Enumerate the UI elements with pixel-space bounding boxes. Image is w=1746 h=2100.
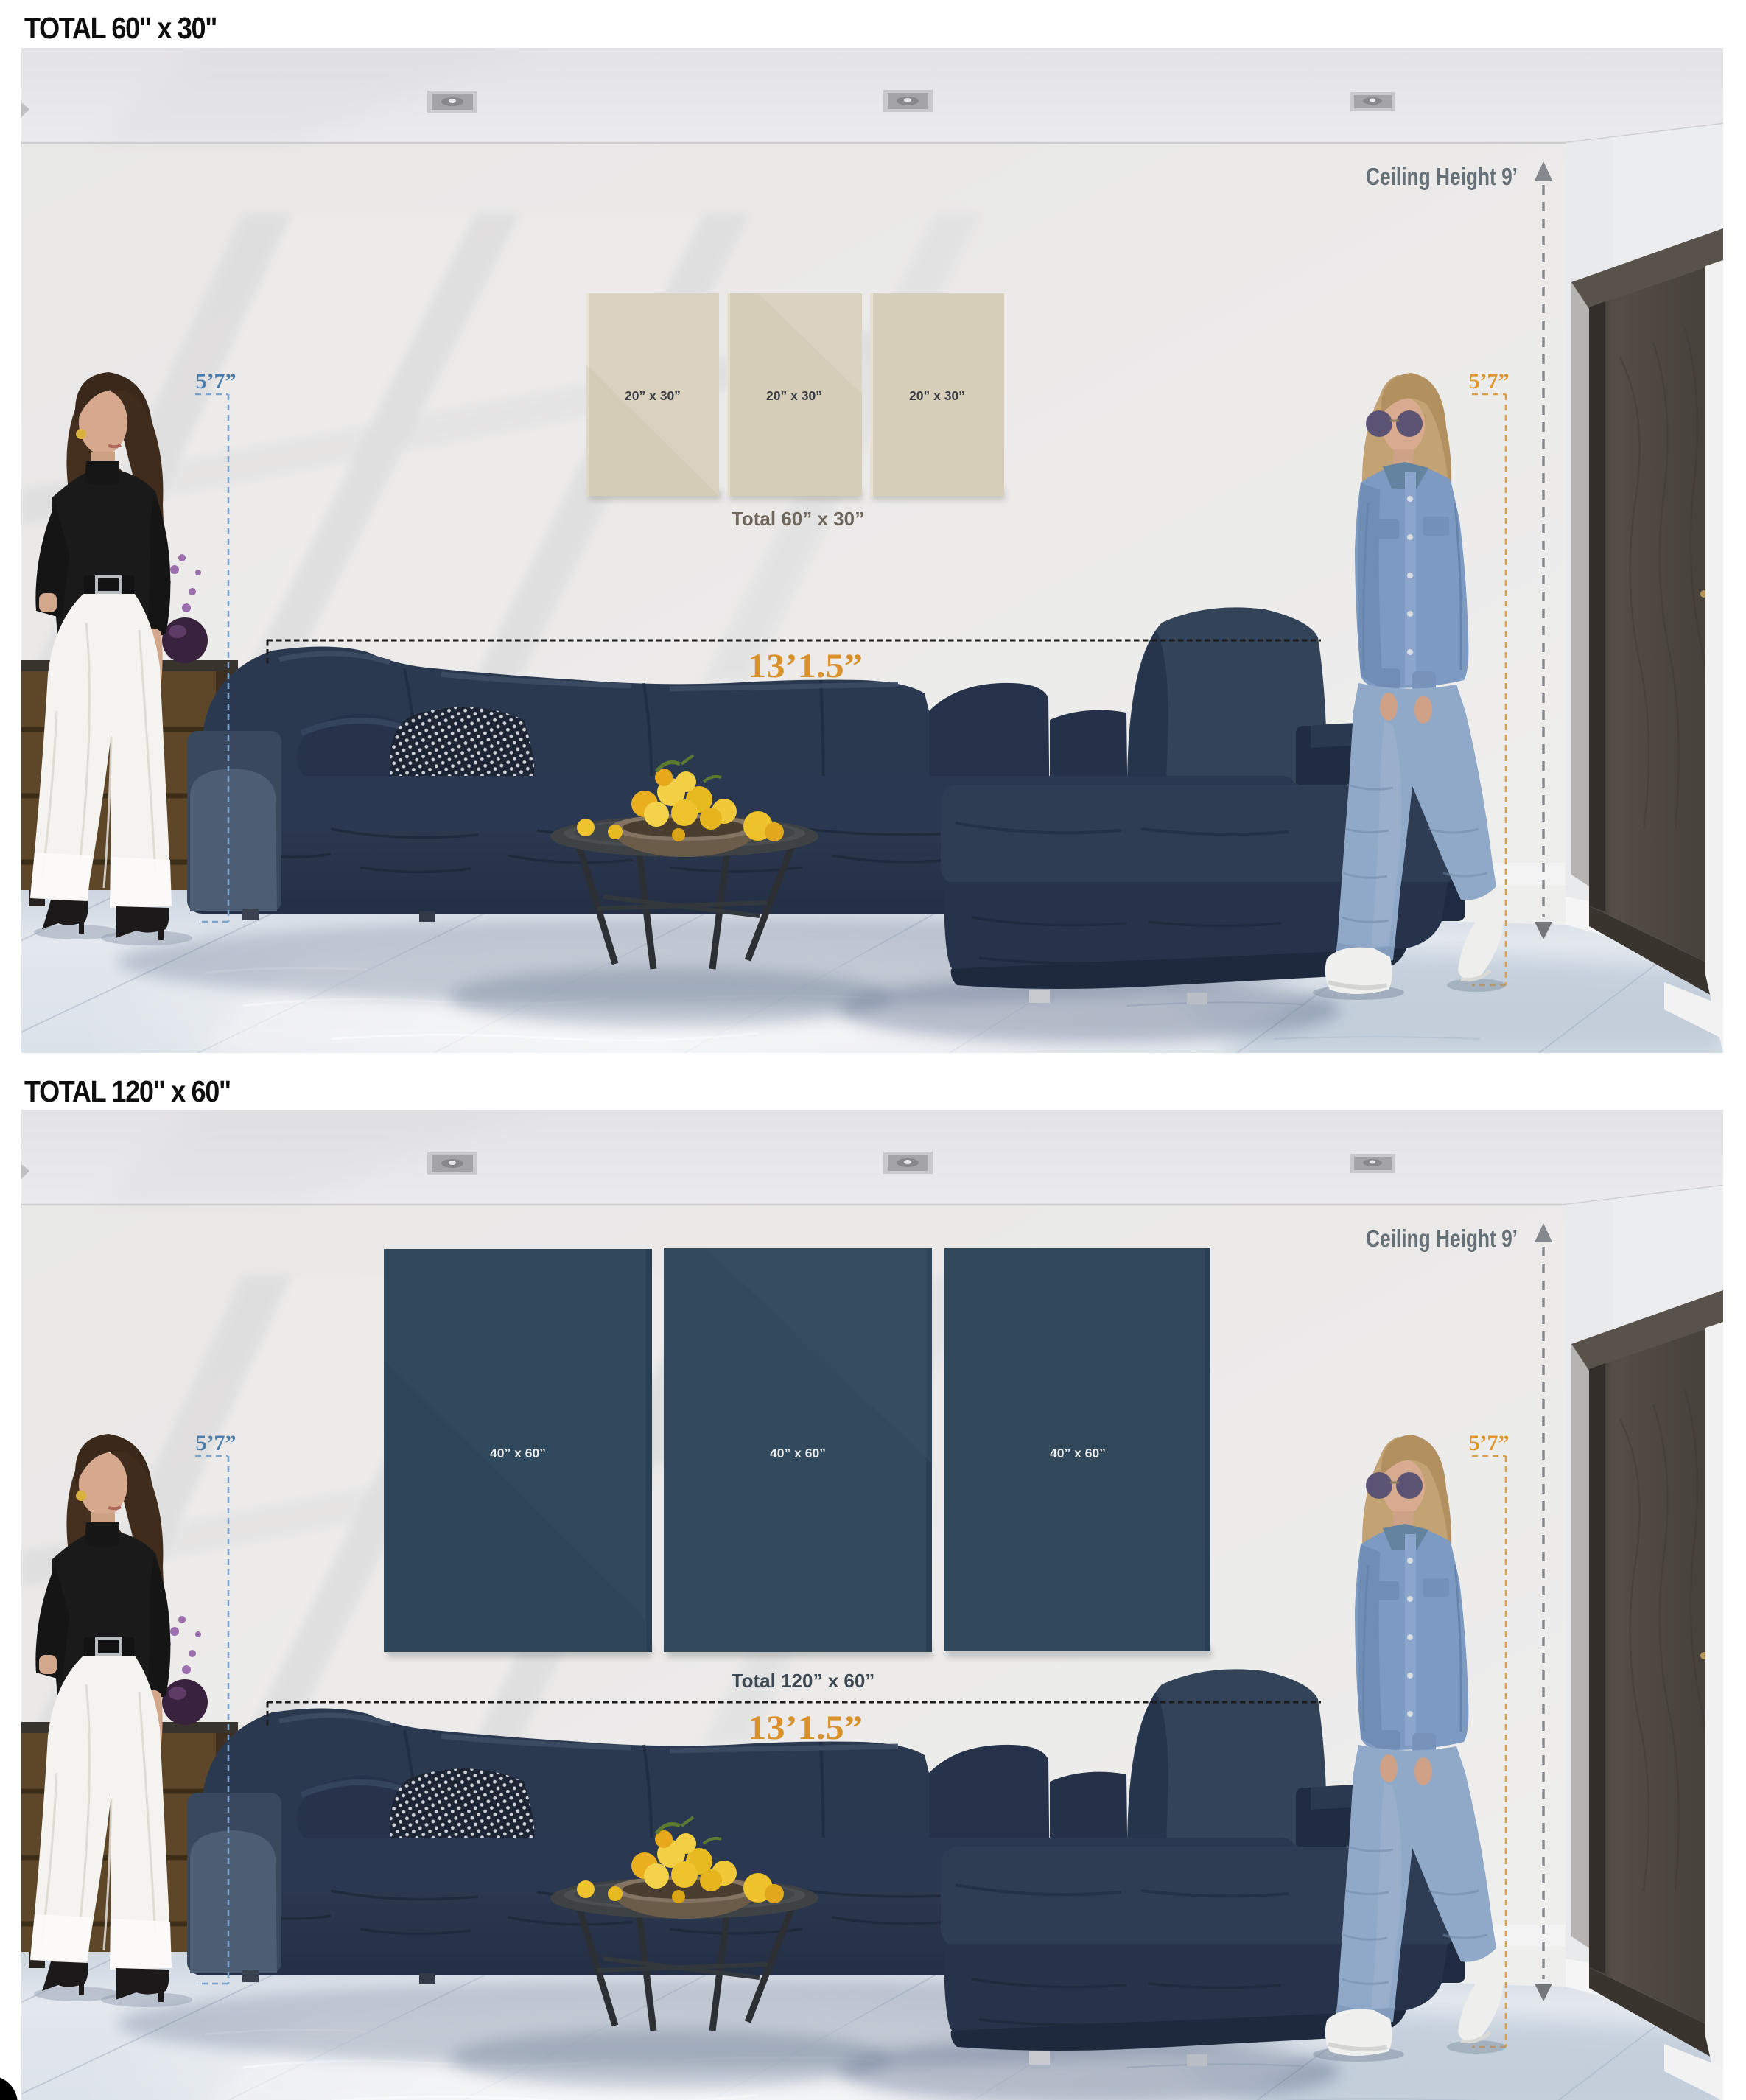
svg-text:Total 120” x 60”: Total 120” x 60” [732, 1670, 875, 1692]
svg-text:Total 60” x 30”: Total 60” x 30” [732, 508, 864, 530]
svg-text:40” x 60”: 40” x 60” [1050, 1446, 1106, 1460]
svg-text:20” x 30”: 20” x 30” [625, 388, 681, 403]
svg-text:20” x 30”: 20” x 30” [909, 388, 965, 403]
svg-text:40” x 60”: 40” x 60” [770, 1446, 826, 1460]
svg-text:40” x 60”: 40” x 60” [490, 1446, 546, 1460]
svg-text:20” x 30”: 20” x 30” [766, 388, 822, 403]
